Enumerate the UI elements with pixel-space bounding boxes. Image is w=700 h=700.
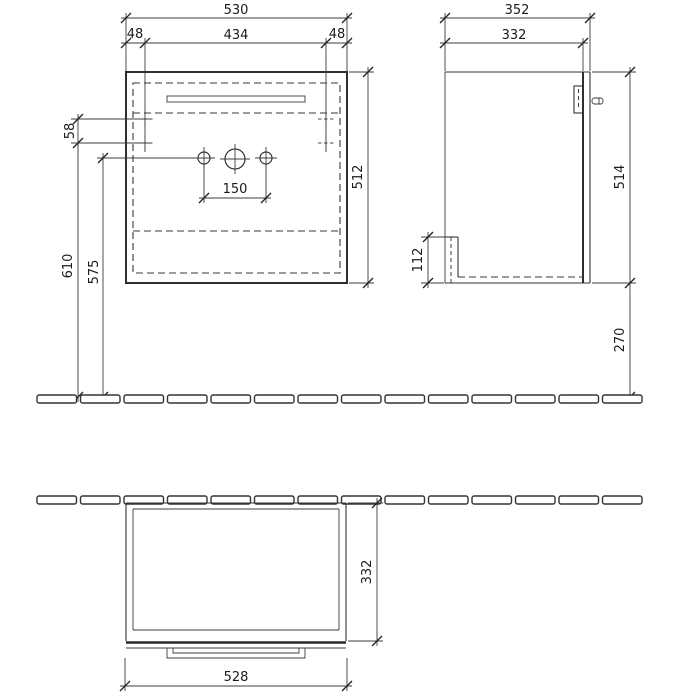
tile-brick xyxy=(472,496,512,504)
dim-front-height-lower: 575 xyxy=(87,153,198,402)
drawing-canvas: 530 48 434 48 58 610 xyxy=(0,0,700,700)
tile-brick xyxy=(559,496,599,504)
tile-brick xyxy=(603,395,643,403)
tile-brick xyxy=(385,496,425,504)
dim-label: 352 xyxy=(505,3,530,18)
dim-label: 48 xyxy=(329,27,346,42)
dim-label: 512 xyxy=(351,165,366,190)
dim-plan-depth: 332 xyxy=(348,498,383,646)
dim-front-height-upper: 610 xyxy=(61,143,83,402)
dim-label: 332 xyxy=(502,28,527,43)
tile-brick xyxy=(211,395,251,403)
tile-brick xyxy=(81,496,121,504)
dim-label: 610 xyxy=(61,254,76,279)
dim-label: 112 xyxy=(411,248,426,273)
dim-plan-front-width: 528 xyxy=(120,658,352,691)
side-wall-bracket xyxy=(574,86,603,113)
side-service-recess xyxy=(445,237,458,283)
dim-label: 48 xyxy=(127,27,144,42)
bracket-adjuster-knob xyxy=(592,98,603,104)
tap-holes xyxy=(193,144,277,174)
tile-brick xyxy=(124,395,164,403)
tile-brick xyxy=(429,395,469,403)
floor-tile-row xyxy=(37,395,642,403)
front-view: 530 48 434 48 58 610 xyxy=(61,3,374,402)
tile-brick xyxy=(255,395,295,403)
dim-label: 58 xyxy=(63,123,78,140)
front-handle-slot xyxy=(167,96,305,102)
dim-label: 434 xyxy=(224,28,249,43)
tile-brick xyxy=(298,395,338,403)
tile-brick xyxy=(37,395,77,403)
dim-side-heights: 514 270 xyxy=(592,67,636,402)
dim-label: 332 xyxy=(360,560,375,585)
tile-brick xyxy=(603,496,643,504)
dim-label: 150 xyxy=(223,182,248,197)
tile-brick xyxy=(37,496,77,504)
plan-view: 332 528 xyxy=(120,498,383,691)
mounting-point-marks xyxy=(137,111,334,151)
tile-brick xyxy=(342,395,382,403)
tile-brick xyxy=(516,395,556,403)
tile-brick xyxy=(559,395,599,403)
tile-brick xyxy=(472,395,512,403)
dim-front-carcass-height: 512 xyxy=(349,67,374,288)
tile-brick xyxy=(516,496,556,504)
dim-label: 514 xyxy=(613,165,628,190)
tile-brick xyxy=(81,395,121,403)
technical-drawing-page: 530 48 434 48 58 610 xyxy=(0,0,700,700)
dim-side-carcass-depth: 332 xyxy=(440,28,588,71)
tile-brick xyxy=(168,395,208,403)
front-carcass-outline xyxy=(126,72,347,283)
side-view: 352 332 514 270 112 xyxy=(411,3,636,402)
dim-label: 575 xyxy=(87,260,102,285)
dim-label: 270 xyxy=(613,328,628,353)
tile-brick xyxy=(429,496,469,504)
plan-handle-recess xyxy=(167,648,305,658)
dim-label: 528 xyxy=(224,670,249,685)
dim-front-mount-drop: 58 xyxy=(63,114,152,148)
dim-label: 530 xyxy=(224,3,249,18)
tile-brick xyxy=(385,395,425,403)
front-door-hidden-outline xyxy=(133,83,340,273)
dim-side-service-recess: 112 xyxy=(411,232,446,288)
dim-front-mount-spacing: 48 434 48 xyxy=(121,27,352,152)
